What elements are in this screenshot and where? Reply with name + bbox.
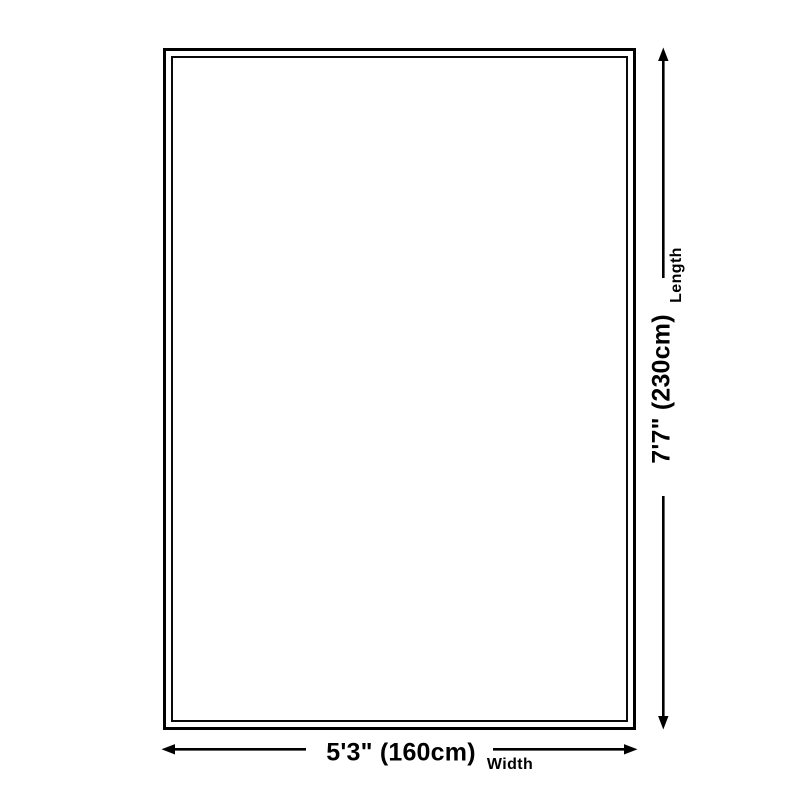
arrow-down-icon [658, 716, 668, 730]
rug-size-diagram: 7'7" (230cm) Length 5'3" (160cm) Width [0, 0, 800, 800]
length-value: 7'7" (230cm) [648, 314, 677, 463]
rug-outline-outer [163, 48, 636, 730]
arrow-left-icon [162, 744, 176, 754]
arrow-right-icon [624, 744, 638, 754]
width-value: 5'3" (160cm) [326, 739, 475, 768]
rug-outline-inner [171, 56, 628, 722]
arrow-up-icon [658, 48, 668, 62]
length-axis-label: Length [668, 247, 686, 303]
width-axis-label: Width [487, 756, 533, 774]
